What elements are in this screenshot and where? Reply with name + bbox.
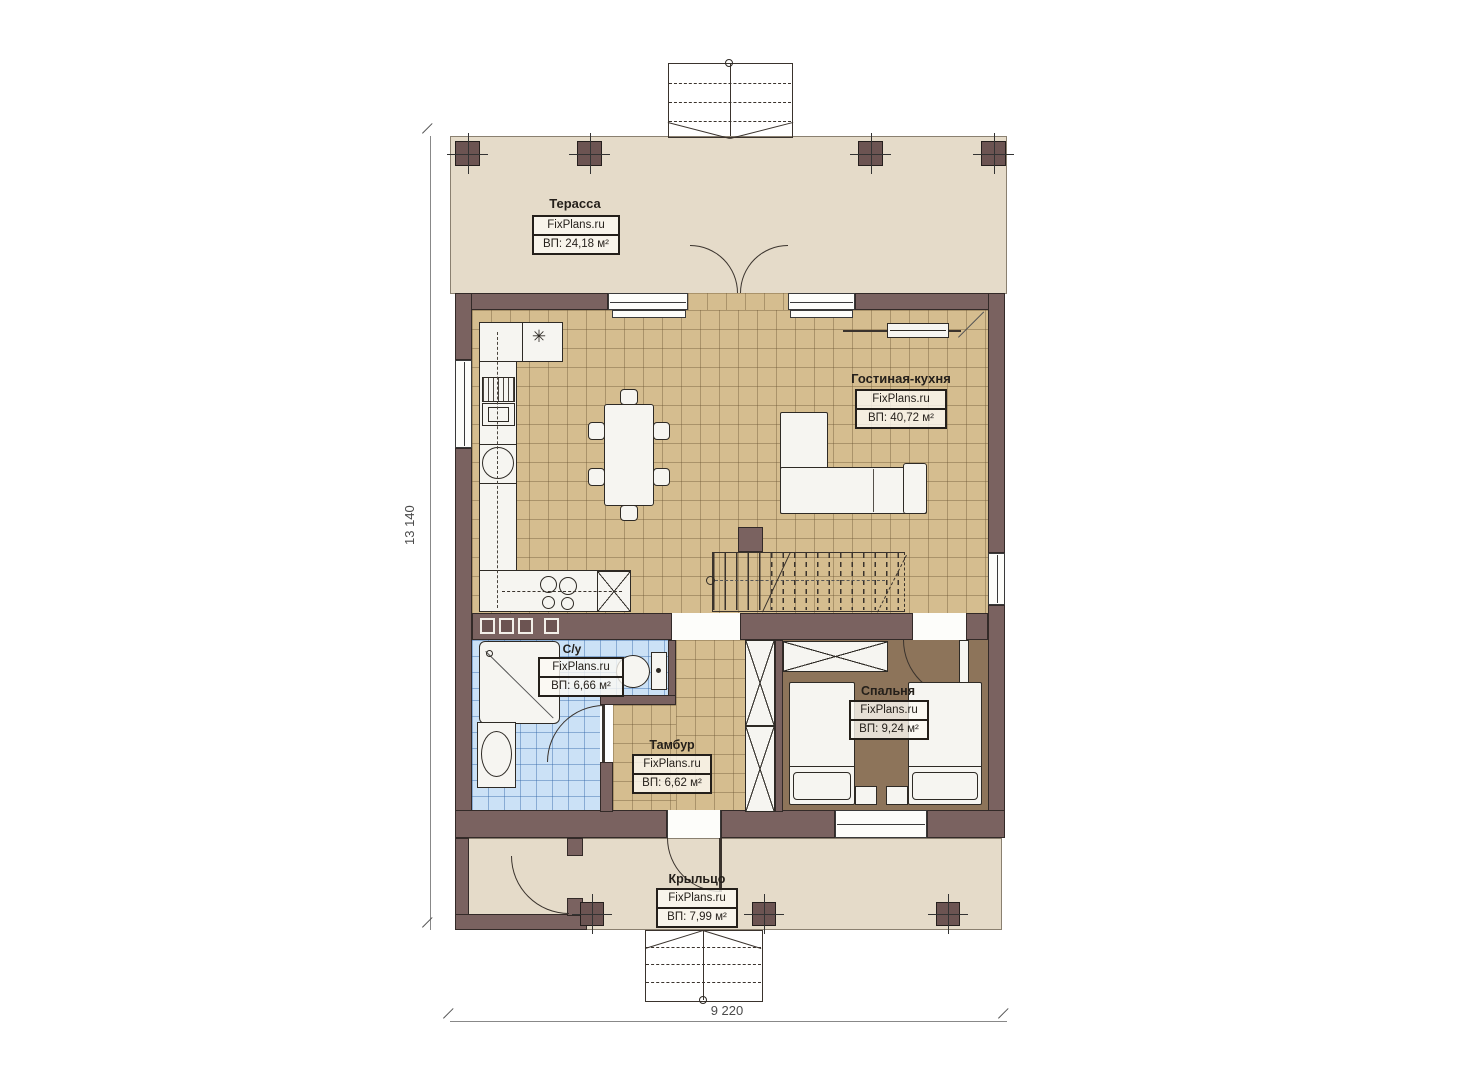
area-value: ВП: 6,62 м² [634, 775, 710, 792]
wardrobe [745, 726, 775, 812]
wall-block [480, 618, 495, 634]
dining-table [604, 404, 654, 506]
height-dimension-line [430, 136, 431, 930]
brand-link: FixPlans.ru [540, 659, 622, 678]
stair-treads [713, 553, 771, 610]
kitchen-corner-unit [479, 322, 563, 362]
room-label-living: Гостиная-кухня [845, 371, 957, 386]
pillow [793, 772, 851, 800]
chair [588, 422, 605, 440]
wall-segment [721, 810, 835, 838]
staircase [712, 552, 905, 612]
stair-newel-post [738, 527, 763, 552]
wall-segment [775, 640, 783, 812]
wall-block [518, 618, 533, 634]
oven-inner [488, 407, 509, 422]
sink-bowl [482, 447, 514, 479]
counter-centerline [502, 591, 622, 592]
pillow [912, 772, 978, 800]
column-post [580, 902, 604, 926]
washbasin-bowl [481, 731, 512, 777]
column-post [858, 141, 883, 166]
wardrobe [745, 640, 775, 726]
dimension-label-height: 13 140 [402, 480, 418, 570]
chair [653, 422, 670, 440]
brand-link: FixPlans.ru [658, 890, 736, 909]
stove-burner [561, 597, 574, 610]
wall-segment [455, 810, 667, 838]
fridge-icon: ✳ [529, 327, 549, 347]
info-box-porch: FixPlans.ru ВП: 7,99 м² [656, 888, 738, 928]
door-opening [667, 810, 721, 838]
wall-segment [455, 448, 472, 838]
wall-segment [600, 762, 613, 812]
area-value: ВП: 9,24 м² [851, 721, 927, 738]
brand-link: FixPlans.ru [857, 391, 945, 410]
nightstand [886, 786, 908, 805]
window [835, 810, 927, 838]
passage-opening [672, 613, 740, 640]
info-box-bedroom: FixPlans.ru ВП: 9,24 м² [849, 700, 929, 740]
wall-segment [855, 293, 1005, 310]
area-value: ВП: 6,66 м² [540, 678, 622, 695]
column-post [936, 902, 960, 926]
chair [588, 468, 605, 486]
shower-drain [486, 650, 493, 657]
wardrobe [783, 641, 888, 672]
dim-tick [422, 123, 433, 134]
step-start-marker [699, 996, 707, 1004]
wall-segment [740, 613, 913, 640]
column-post [981, 141, 1006, 166]
info-box-vestibule: FixPlans.ru ВП: 6,62 м² [632, 754, 712, 794]
unit-divider [522, 323, 523, 361]
window-sill [790, 310, 853, 318]
wall-segment [966, 613, 988, 640]
dimension-label-width: 9 220 [697, 1003, 757, 1018]
stair-centerline [715, 580, 885, 581]
door-opening [913, 613, 966, 640]
sofa-cushion-line [873, 469, 874, 512]
floor-plan: 13 140 9 220 [0, 0, 1473, 1080]
wall-segment [455, 914, 587, 930]
wall-segment [988, 605, 1005, 838]
stove-burner [559, 577, 577, 595]
room-label-porch: Крыльцо [663, 872, 731, 886]
brand-link: FixPlans.ru [634, 756, 710, 775]
room-label-bathroom: С/у [540, 642, 604, 656]
window [788, 293, 855, 310]
dim-tick [422, 917, 433, 928]
stove-burner [542, 596, 555, 609]
area-value: ВП: 7,99 м² [658, 909, 736, 926]
area-value: ВП: 40,72 м² [857, 410, 945, 427]
chair [653, 468, 670, 486]
brand-link: FixPlans.ru [851, 702, 927, 721]
chair [620, 389, 638, 405]
cistern-button [656, 668, 661, 673]
wall-segment [927, 810, 1005, 838]
room-label-terrace: Терасса [525, 196, 625, 211]
chair [620, 505, 638, 521]
info-box-terrace: FixPlans.ru ВП: 24,18 м² [532, 215, 620, 255]
info-box-bathroom: FixPlans.ru ВП: 6,66 м² [538, 657, 624, 697]
wall-segment [567, 838, 583, 856]
step-start-marker [725, 59, 733, 67]
bed-fold-line [789, 766, 855, 767]
wall-block [544, 618, 559, 634]
column-post [752, 902, 776, 926]
window [455, 360, 472, 448]
stair-start-marker [706, 576, 715, 585]
wall-segment [455, 293, 472, 360]
dim-tick [998, 1008, 1009, 1019]
window [988, 553, 1005, 605]
nightstand [855, 786, 877, 805]
wall-segment [988, 293, 1005, 553]
wall-segment [455, 293, 608, 310]
wall-segment [668, 640, 676, 700]
column-post [455, 141, 480, 166]
dim-tick [443, 1008, 454, 1019]
brand-link: FixPlans.ru [534, 217, 618, 236]
bed-fold-line [908, 766, 982, 767]
counter-centerline [497, 332, 498, 608]
width-dimension-line [450, 1021, 1007, 1022]
tv-inner-line [890, 330, 946, 331]
step-centerline [703, 931, 704, 1000]
terrace-door-threshold [688, 293, 788, 310]
window-sill [612, 310, 686, 318]
room-label-vestibule: Тамбур [640, 738, 704, 752]
step-centerline [730, 64, 731, 136]
wall-block [499, 618, 514, 634]
info-box-living: FixPlans.ru ВП: 40,72 м² [855, 389, 947, 429]
room-label-bedroom: Спальня [845, 684, 931, 698]
dishwasher [482, 377, 515, 402]
sofa-armrest [903, 463, 927, 514]
window [608, 293, 688, 310]
area-value: ВП: 24,18 м² [534, 236, 618, 253]
porch-steps [645, 930, 763, 1002]
column-post [577, 141, 602, 166]
